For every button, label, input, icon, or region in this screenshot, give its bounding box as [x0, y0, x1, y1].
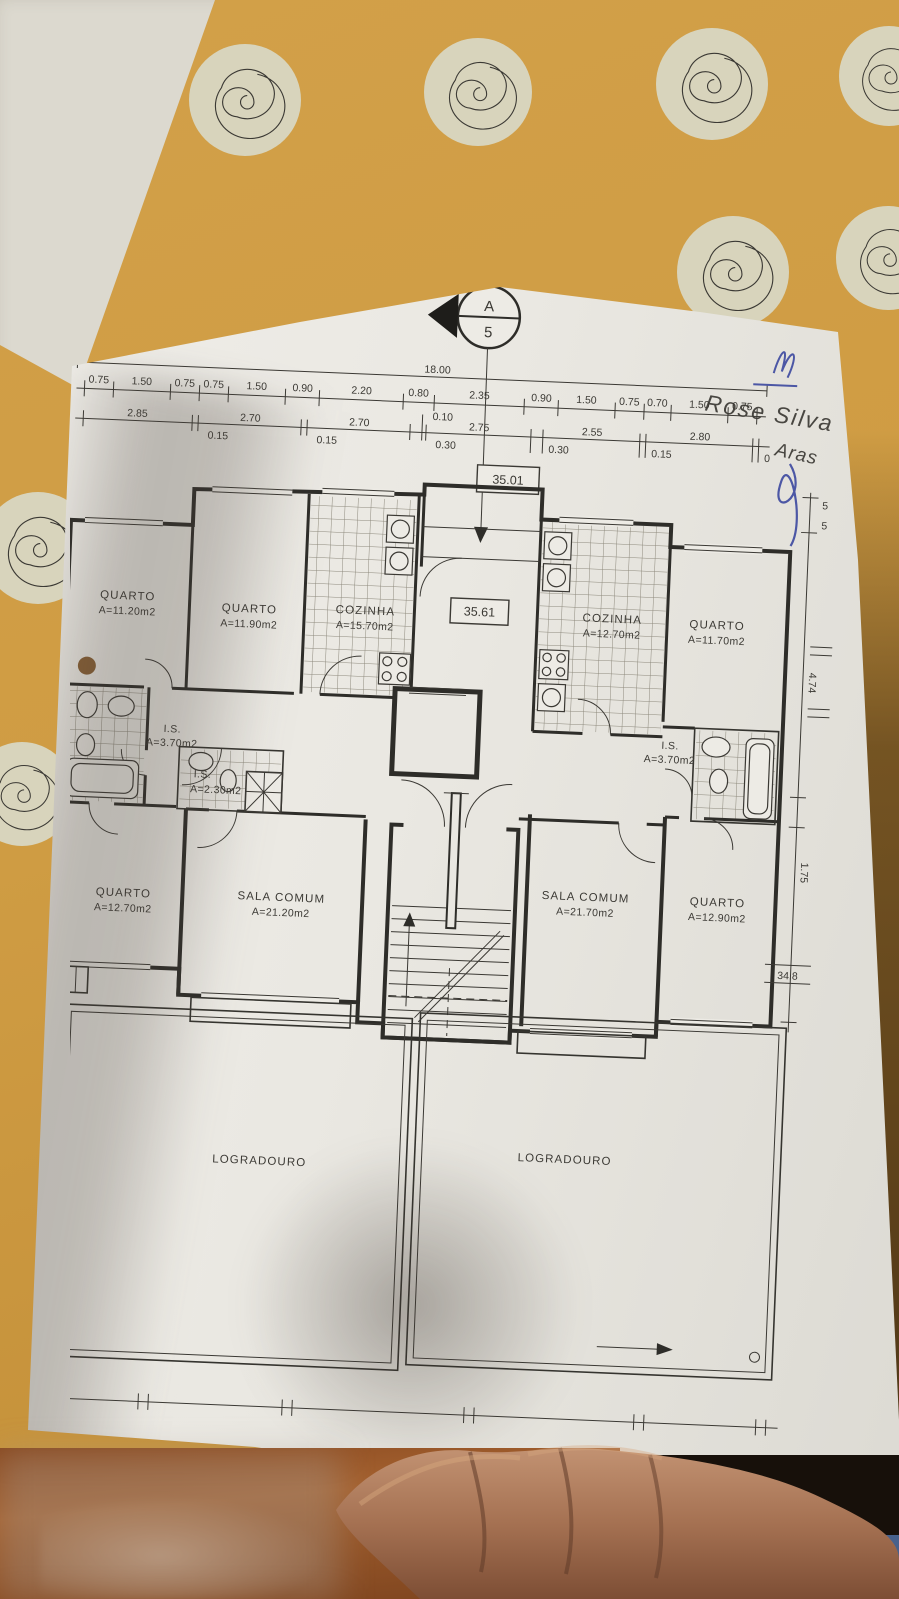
room-area: A=21.20m2 — [252, 906, 310, 920]
spiral-motif — [189, 44, 301, 156]
spiral-motif — [424, 38, 532, 146]
signature-text: Rose Silva — [703, 390, 835, 437]
dim: 0.90 — [531, 392, 552, 405]
dim: 5 — [821, 520, 827, 532]
room-area: A=15.70m2 — [336, 619, 394, 633]
dim: 0.15 — [651, 448, 672, 461]
room-name: SALA COMUM — [237, 890, 325, 906]
spiral-motif — [836, 206, 899, 310]
tablecloth-circle — [189, 44, 301, 156]
dim: 1.50 — [576, 394, 597, 407]
room-name: QUARTO — [690, 896, 746, 910]
floor-haze — [0, 1452, 340, 1599]
dim: 2.35 — [469, 389, 490, 402]
room-name: COZINHA — [335, 604, 395, 618]
elevator-shaft — [392, 687, 481, 777]
dim: 4.74 — [805, 673, 818, 694]
elevation-label: 34.8 — [777, 970, 798, 983]
signature-flourish — [776, 463, 799, 546]
dim-overall: 18.00 — [424, 364, 451, 377]
dim: 0.30 — [435, 439, 456, 452]
room-name: QUARTO — [689, 619, 745, 633]
dim: 0 — [764, 453, 770, 465]
dim: 0.70 — [647, 397, 668, 410]
tablecloth-circle — [677, 216, 789, 328]
dim: 0.10 — [432, 411, 453, 424]
room-name: SALA COMUM — [542, 890, 630, 906]
hand-shadow — [240, 1140, 580, 1470]
room-area: A=12.70m2 — [583, 627, 641, 641]
section-number: 5 — [484, 324, 493, 341]
dim: 2.70 — [349, 416, 370, 429]
dim: 0.30 — [548, 444, 569, 457]
dim: 2.55 — [582, 426, 603, 439]
room-area: A=11.70m2 — [688, 634, 745, 648]
entry-door-arc — [399, 780, 446, 827]
room-name: I.S. — [661, 740, 679, 753]
dim: 0.75 — [619, 396, 640, 409]
dim: 2.20 — [351, 384, 372, 397]
level-value: 35.61 — [464, 604, 496, 619]
room-area: A=21.70m2 — [556, 906, 614, 920]
room-area: A=3.70m2 — [644, 753, 696, 767]
entry-door-arc — [465, 783, 512, 830]
dim: 1.75 — [797, 862, 810, 883]
spiral-motif — [656, 28, 768, 140]
tablecloth-circle — [836, 206, 899, 310]
tablecloth-circle — [839, 26, 899, 126]
level-label-35-61: 35.61 — [450, 598, 509, 625]
photo-scene: 18.00 0.75 1.50 0.75 0.75 1.50 0.90 2.20… — [0, 0, 899, 1599]
spiral-motif — [839, 26, 899, 126]
signature-text2: Aras — [772, 439, 820, 469]
tablecloth-circle — [656, 28, 768, 140]
yard-drain — [749, 1352, 759, 1362]
dim: 0.80 — [408, 387, 429, 400]
dim: 2.80 — [690, 431, 711, 444]
spiral-motif — [677, 216, 789, 328]
tablecloth-circle — [424, 38, 532, 146]
dim: 0.90 — [292, 382, 313, 395]
stairwell — [383, 780, 521, 1043]
signature-flourish — [753, 351, 798, 386]
section-letter: A — [484, 298, 495, 315]
section-triangle — [427, 293, 459, 338]
yard-arrow — [657, 1343, 673, 1356]
dim: 2.75 — [469, 421, 490, 434]
dim: 5 — [822, 500, 828, 512]
dim: 1.50 — [246, 380, 267, 393]
room-area: A=12.90m2 — [688, 911, 746, 925]
room-name: COZINHA — [582, 612, 642, 626]
level-value: 35.01 — [492, 472, 524, 487]
signature: Rose Silva Aras — [698, 349, 838, 548]
